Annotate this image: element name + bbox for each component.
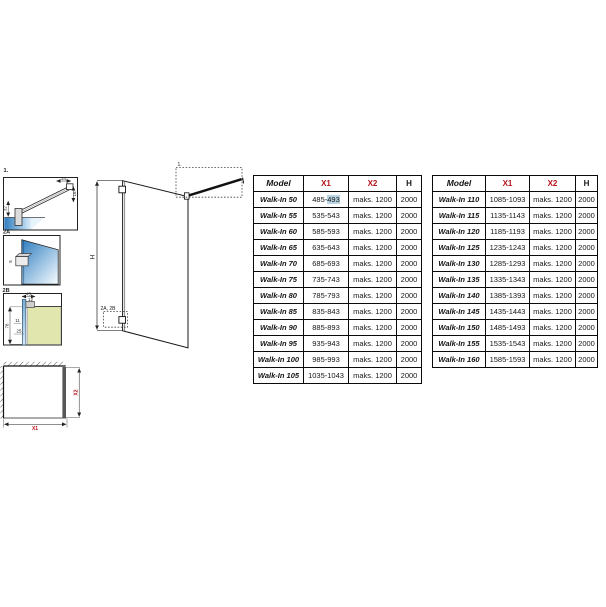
cell-x2: maks. 1200 — [530, 336, 576, 352]
depth-label: X2 — [74, 389, 80, 395]
cell-model: Walk-In 150 — [433, 320, 486, 336]
width-label: X1 — [32, 426, 38, 432]
cell-h: 2000 — [397, 368, 422, 384]
cell-model: Walk-In 130 — [433, 256, 486, 272]
callout-1-label: 1. — [178, 162, 182, 168]
cell-x2: maks. 1200 — [530, 256, 576, 272]
cell-x1: 1085-1093 — [486, 192, 530, 208]
cell-x2: maks. 1200 — [349, 208, 397, 224]
header-h: H — [576, 176, 598, 192]
cell-x1: 735-743 — [304, 272, 349, 288]
cell-x2: maks. 1200 — [349, 192, 397, 208]
cell-h: 2000 — [576, 336, 598, 352]
table-row: Walk-In 1301285-1293maks. 12002000 — [433, 256, 598, 272]
cell-x2: maks. 1200 — [349, 320, 397, 336]
cell-h: 2000 — [397, 208, 422, 224]
table-row: Walk-In 1501485-1493maks. 12002000 — [433, 320, 598, 336]
cell-x1: 1235-1243 — [486, 240, 530, 256]
header-x1: X1 — [486, 176, 530, 192]
spec-table-right: Model X1 X2 H Walk-In 1101085-1093maks. … — [432, 175, 598, 368]
cell-x1: 535-543 — [304, 208, 349, 224]
cell-model: Walk-In 75 — [254, 272, 304, 288]
cell-x1: 1335-1343 — [486, 272, 530, 288]
cell-model: Walk-In 110 — [433, 192, 486, 208]
table-row: Walk-In 75735-743maks. 12002000 — [254, 272, 422, 288]
cell-x1: 1035-1043 — [304, 368, 349, 384]
cell-model: Walk-In 95 — [254, 336, 304, 352]
cell-x2: maks. 1200 — [349, 272, 397, 288]
cell-x2: maks. 1200 — [349, 368, 397, 384]
detail-2b-label: 2B — [3, 288, 10, 294]
cell-h: 2000 — [576, 352, 598, 368]
table-row: Walk-In 1351335-1343maks. 12002000 — [433, 272, 598, 288]
cell-model: Walk-In 140 — [433, 288, 486, 304]
cell-x1: 1535-1543 — [486, 336, 530, 352]
table-row: Walk-In 1551535-1543maks. 12002000 — [433, 336, 598, 352]
detail-2b-dim-left: 78 — [4, 323, 9, 328]
cell-model: Walk-In 65 — [254, 240, 304, 256]
cell-x2: maks. 1200 — [530, 288, 576, 304]
cell-h: 2000 — [576, 208, 598, 224]
cell-x1: 935-943 — [304, 336, 349, 352]
wall-hatch-top — [4, 362, 66, 366]
cell-h: 2000 — [576, 320, 598, 336]
header-row: Model X1 X2 H — [254, 176, 422, 192]
wall-bracket-top — [119, 186, 126, 193]
elevation-drawing: H 1. 2A, 2B — [90, 162, 244, 348]
cell-h: 2000 — [576, 192, 598, 208]
cell-x1: 885-893 — [304, 320, 349, 336]
cell-x2: maks. 1200 — [349, 352, 397, 368]
table-row: Walk-In 50485-493maks. 12002000 — [254, 192, 422, 208]
cell-h: 2000 — [397, 352, 422, 368]
highlighted-value: 493 — [327, 195, 340, 204]
cell-x1: 585-593 — [304, 224, 349, 240]
cell-x1: 635-643 — [304, 240, 349, 256]
detail-1-label: 1. — [4, 168, 9, 174]
plan-drawing: X2 X1 — [0, 362, 80, 432]
table-row: Walk-In 1051035-1043maks. 12002000 — [254, 368, 422, 384]
header-h: H — [397, 176, 422, 192]
table-row: Walk-In 95935-943maks. 12002000 — [254, 336, 422, 352]
cell-model: Walk-In 85 — [254, 304, 304, 320]
wall-bracket — [67, 184, 74, 190]
cell-x2: maks. 1200 — [530, 304, 576, 320]
header-model: Model — [254, 176, 304, 192]
cell-x2: maks. 1200 — [349, 256, 397, 272]
cell-x2: maks. 1200 — [530, 208, 576, 224]
spec-table-left: Model X1 X2 H Walk-In 50485-493maks. 120… — [253, 175, 422, 384]
cell-model: Walk-In 90 — [254, 320, 304, 336]
cell-x2: maks. 1200 — [349, 304, 397, 320]
cell-x1: 485-493 — [304, 192, 349, 208]
cell-x2: maks. 1200 — [349, 288, 397, 304]
cell-model: Walk-In 70 — [254, 256, 304, 272]
cell-h: 2000 — [576, 304, 598, 320]
cell-model: Walk-In 160 — [433, 352, 486, 368]
cell-h: 2000 — [576, 224, 598, 240]
header-x2: X2 — [349, 176, 397, 192]
cell-model: Walk-In 125 — [433, 240, 486, 256]
glass-panel — [123, 181, 188, 348]
table-row: Walk-In 85835-843maks. 12002000 — [254, 304, 422, 320]
cell-x1: 1485-1493 — [486, 320, 530, 336]
table-row: Walk-In 1101085-1093maks. 12002000 — [433, 192, 598, 208]
cell-x2: maks. 1200 — [349, 240, 397, 256]
bar-clamp — [184, 193, 189, 199]
detail-box-1: 1. 34 16 32 — [3, 168, 78, 230]
table-row: Walk-In 70685-693maks. 12002000 — [254, 256, 422, 272]
bracket-front-face — [16, 257, 28, 266]
value-prefix: 485- — [312, 195, 327, 204]
detail-box-2b: 2B 45 12 78 11 25 — [3, 288, 62, 345]
cell-h: 2000 — [397, 320, 422, 336]
table-row: Walk-In 65635-643maks. 12002000 — [254, 240, 422, 256]
detail-box-2a: 2A 5 — [3, 230, 60, 286]
cell-model: Walk-In 145 — [433, 304, 486, 320]
detail-1-dim-top: 34 — [61, 176, 66, 181]
cell-h: 2000 — [576, 256, 598, 272]
detail-2b-dim-bottom: 25 — [17, 328, 22, 333]
cell-model: Walk-In 55 — [254, 208, 304, 224]
shower-tray — [28, 307, 62, 345]
spec-sheet: { "colors": { "accent_red": "#b5121b", "… — [0, 0, 606, 607]
cell-model: Walk-In 80 — [254, 288, 304, 304]
cell-x1: 785-793 — [304, 288, 349, 304]
cell-x1: 1185-1193 — [486, 224, 530, 240]
table-row: Walk-In 1151135-1143maks. 12002000 — [433, 208, 598, 224]
table-row: Walk-In 1601585-1593maks. 12002000 — [433, 352, 598, 368]
cell-h: 2000 — [397, 272, 422, 288]
cell-x1: 1135-1143 — [486, 208, 530, 224]
cell-x1: 835-843 — [304, 304, 349, 320]
cell-x2: maks. 1200 — [530, 352, 576, 368]
table-row: Walk-In 1451435-1443maks. 12002000 — [433, 304, 598, 320]
table-row: Walk-In 55535-543maks. 12002000 — [254, 208, 422, 224]
cell-x2: maks. 1200 — [349, 224, 397, 240]
cell-h: 2000 — [576, 272, 598, 288]
cell-model: Walk-In 50 — [254, 192, 304, 208]
cell-h: 2000 — [397, 288, 422, 304]
cell-h: 2000 — [397, 240, 422, 256]
cell-x2: maks. 1200 — [530, 192, 576, 208]
cell-model: Walk-In 100 — [254, 352, 304, 368]
table-row: Walk-In 90885-893maks. 12002000 — [254, 320, 422, 336]
cell-x2: maks. 1200 — [530, 320, 576, 336]
header-row: Model X1 X2 H — [433, 176, 598, 192]
glass-panel-plan — [62, 367, 66, 418]
table-row: Walk-In 1201185-1193maks. 12002000 — [433, 224, 598, 240]
cell-x2: maks. 1200 — [349, 336, 397, 352]
cell-h: 2000 — [576, 240, 598, 256]
header-x1: X1 — [304, 176, 349, 192]
cell-x1: 1435-1443 — [486, 304, 530, 320]
callout-2ab-label: 2A, 2B — [101, 306, 117, 312]
cell-x1: 1585-1593 — [486, 352, 530, 368]
cell-model: Walk-In 115 — [433, 208, 486, 224]
cell-x1: 1285-1293 — [486, 256, 530, 272]
cell-h: 2000 — [397, 336, 422, 352]
table-row: Walk-In 100985-993maks. 12002000 — [254, 352, 422, 368]
cell-h: 2000 — [397, 256, 422, 272]
cell-x2: maks. 1200 — [530, 240, 576, 256]
cell-x1: 985-993 — [304, 352, 349, 368]
cell-x1: 1385-1393 — [486, 288, 530, 304]
glass-clamp — [15, 209, 22, 226]
cell-model: Walk-In 60 — [254, 224, 304, 240]
cell-x2: maks. 1200 — [530, 272, 576, 288]
detail-2a-label: 2A — [3, 230, 10, 236]
technical-drawing: 1. 34 16 32 2A 5 2B 45 12 — [0, 160, 250, 440]
cell-h: 2000 — [397, 192, 422, 208]
detail-2b-dim-mid: 11 — [15, 318, 20, 323]
cell-x1: 685-693 — [304, 256, 349, 272]
detail-1-dim-right: 16 — [72, 191, 77, 196]
wall-bracket-bottom — [119, 317, 126, 324]
support-bar-elevation — [188, 179, 242, 196]
header-model: Model — [433, 176, 486, 192]
table-row: Walk-In 1251235-1243maks. 12002000 — [433, 240, 598, 256]
cell-h: 2000 — [397, 224, 422, 240]
cell-model: Walk-In 155 — [433, 336, 486, 352]
cell-model: Walk-In 105 — [254, 368, 304, 384]
cell-x2: maks. 1200 — [530, 224, 576, 240]
cell-model: Walk-In 135 — [433, 272, 486, 288]
bottom-clamp — [26, 302, 35, 308]
cell-h: 2000 — [397, 304, 422, 320]
header-x2: X2 — [530, 176, 576, 192]
table-row: Walk-In 80785-793maks. 12002000 — [254, 288, 422, 304]
detail-1-dim-left: 32 — [3, 206, 8, 211]
height-label: H — [90, 254, 97, 259]
detail-2b-dim-top: 45 — [26, 292, 31, 297]
detail-2b-dim-top2: 12 — [28, 297, 33, 302]
cell-h: 2000 — [576, 288, 598, 304]
cell-model: Walk-In 120 — [433, 224, 486, 240]
table-row: Walk-In 60585-593maks. 12002000 — [254, 224, 422, 240]
table-row: Walk-In 1401385-1393maks. 12002000 — [433, 288, 598, 304]
glass-edge-2b — [22, 300, 26, 346]
